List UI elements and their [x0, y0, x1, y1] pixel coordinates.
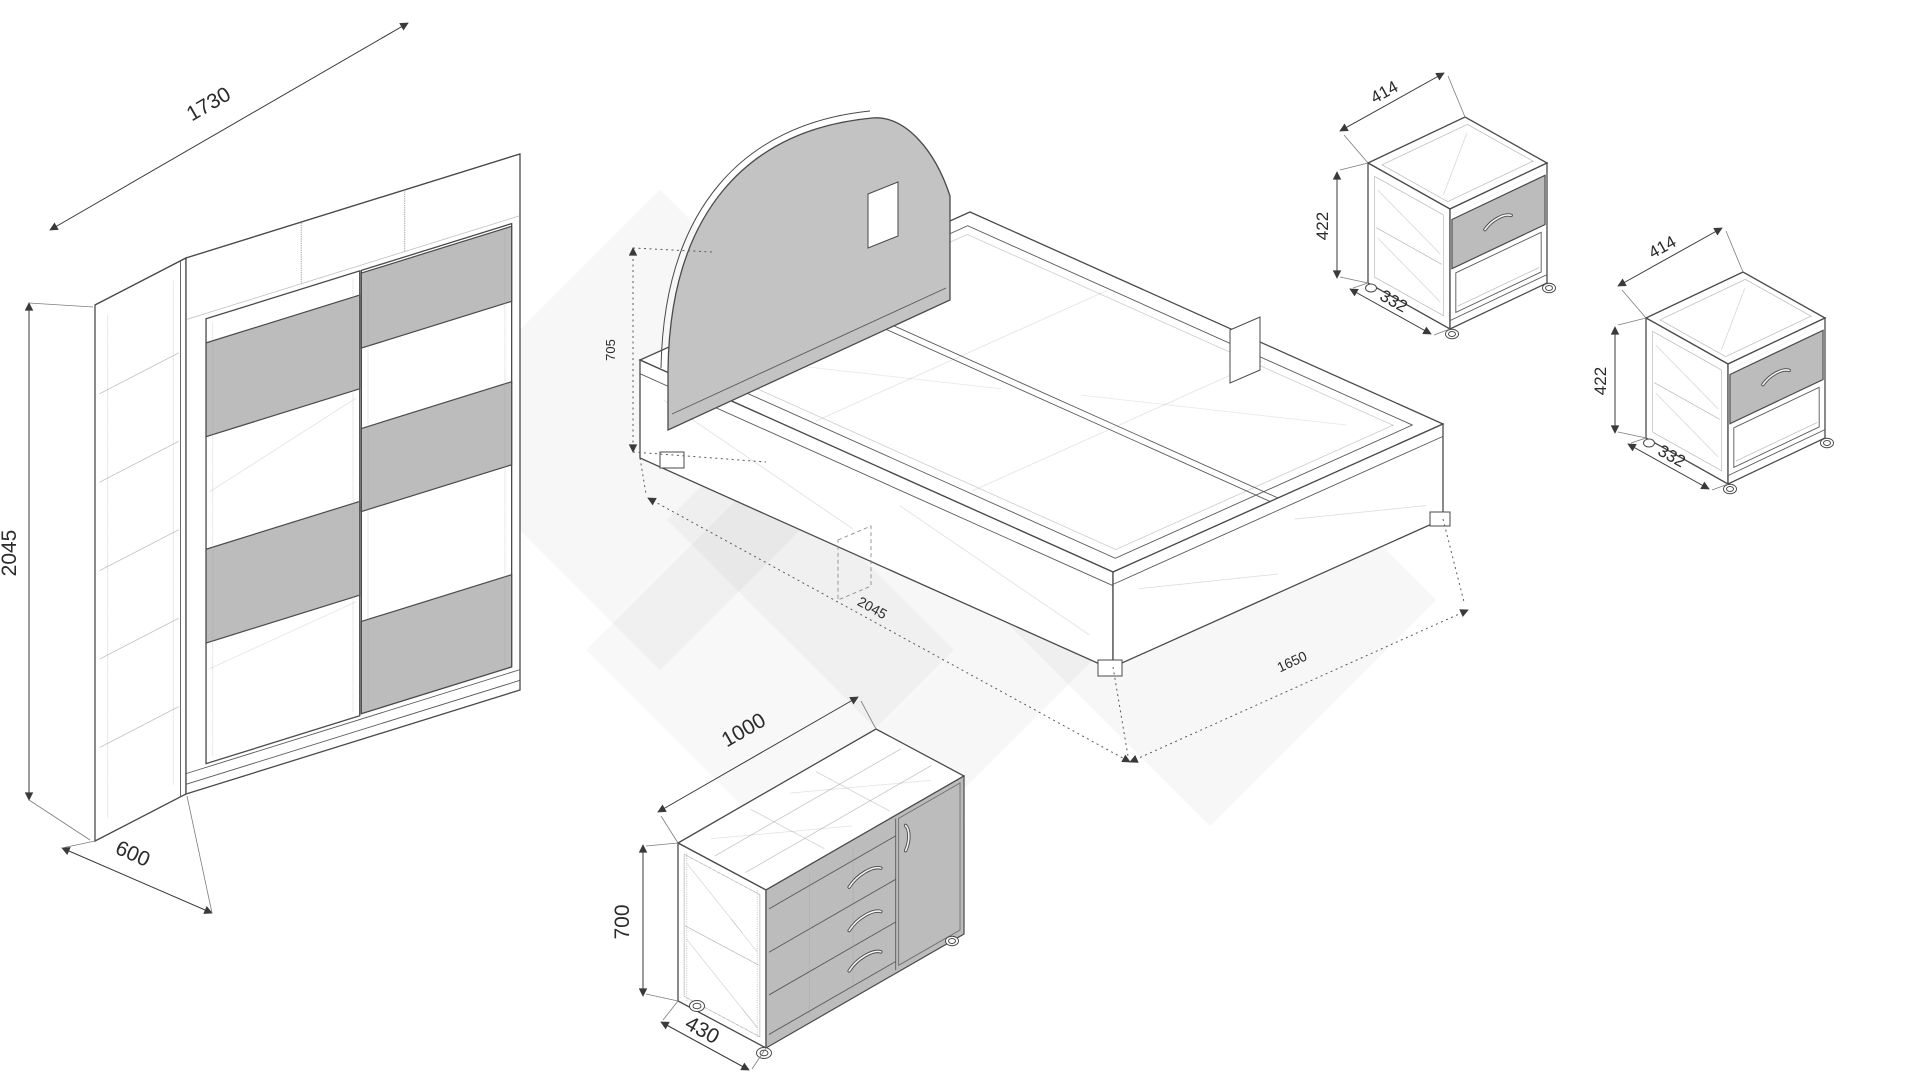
wardrobe-right-door	[361, 224, 511, 714]
dresser-height-dim-label: 700	[611, 904, 634, 939]
wardrobe: 1730 2045 600	[0, 23, 520, 913]
wardrobe-width-dim-label: 1730	[183, 83, 235, 126]
furniture-technical-drawing: 1730 2045 600	[0, 0, 1920, 1080]
wardrobe-left-door	[206, 271, 360, 764]
nightstand-top-width-dim-label: 414	[1367, 77, 1401, 107]
wardrobe-depth-dim-label: 600	[112, 836, 153, 871]
nightstand-top-right: 414 422 332	[1313, 73, 1556, 339]
nightstand-right-width-dim-label: 414	[1645, 232, 1679, 262]
wardrobe-side-face	[95, 258, 186, 841]
nightstand-body	[1337, 73, 1556, 339]
nightstand-right-height-dim-label: 422	[1591, 367, 1610, 395]
wardrobe-front-face	[186, 154, 520, 794]
bed-height-dim-label: 705	[603, 339, 618, 361]
wardrobe-height-dim-label: 2045	[0, 530, 21, 577]
wardrobe-width-dim-line	[50, 23, 408, 230]
drawing-canvas: 1730 2045 600	[0, 0, 1920, 1080]
nightstand-far-right: 414 422 332	[1591, 228, 1834, 494]
nightstand-top-height-dim-label: 422	[1313, 212, 1332, 240]
